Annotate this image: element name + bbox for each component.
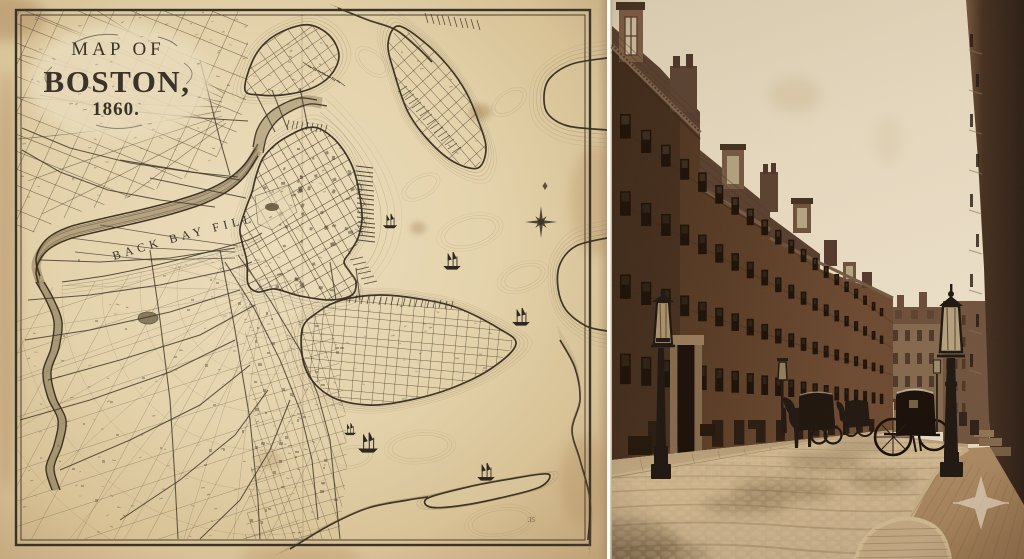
svg-text:BOSTON,: BOSTON, bbox=[44, 64, 191, 99]
svg-text:MAP OF: MAP OF bbox=[71, 39, 165, 60]
svg-text:1860.: 1860. bbox=[92, 99, 140, 120]
svg-text:35: 35 bbox=[527, 516, 536, 524]
